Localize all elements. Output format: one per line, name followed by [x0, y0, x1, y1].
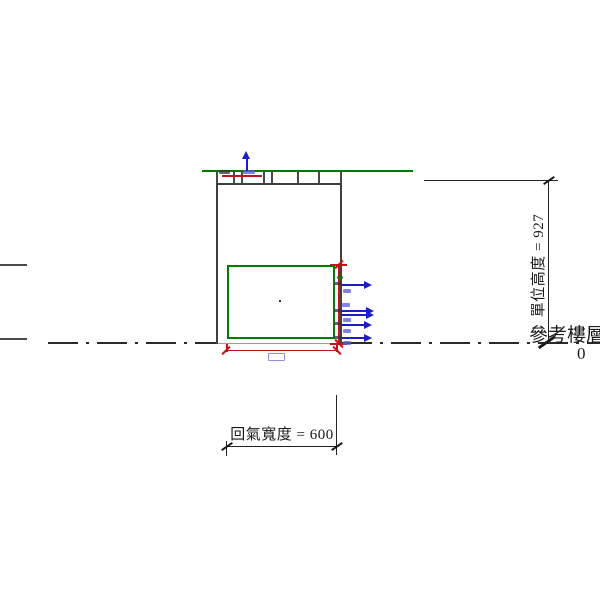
mounting-tab-line — [340, 171, 342, 183]
mounting-tab-line — [297, 171, 299, 183]
tiny-annotation — [343, 289, 351, 293]
tiny-annotation — [219, 170, 230, 174]
up-flow-arrow-icon[interactable] — [246, 158, 248, 171]
temp-dimension-horizontal[interactable] — [227, 350, 337, 351]
connector-mark — [337, 276, 343, 279]
connector-mark — [334, 282, 341, 285]
unit-bottom-edge — [216, 343, 342, 344]
return-width-dimension-text[interactable]: 回氣寬度 = 600 — [230, 423, 334, 444]
return-width-dimension-line[interactable] — [227, 446, 337, 447]
flow-arrowhead-icon — [364, 334, 372, 342]
top-red-reference-line — [222, 175, 262, 177]
dimension-extension-left — [226, 441, 227, 456]
tiny-annotation — [243, 170, 255, 174]
mounting-tab-line — [263, 171, 265, 183]
flow-arrowhead-icon — [364, 281, 372, 289]
center-dot — [279, 300, 281, 302]
up-flow-arrowhead-icon — [242, 151, 250, 159]
left-reference-stub-bottom — [0, 338, 27, 340]
mounting-tab-line — [318, 171, 320, 183]
return-air-opening[interactable] — [227, 265, 335, 339]
flow-arrow-icon[interactable] — [341, 310, 366, 312]
flow-arrowhead-icon — [364, 321, 372, 329]
flow-arrow-icon[interactable] — [341, 284, 364, 286]
tiny-annotation — [343, 318, 351, 322]
left-reference-stub-top — [0, 264, 27, 266]
tiny-annotation — [343, 329, 351, 333]
dimension-extension-top — [424, 180, 558, 181]
flow-arrowhead-icon — [366, 311, 374, 319]
level-elevation-text[interactable]: 0 — [577, 344, 586, 364]
level-name-text[interactable]: 參考樓層 — [529, 320, 600, 347]
connector-mark — [334, 309, 341, 312]
flow-arrow-icon[interactable] — [341, 337, 364, 339]
connector-mark — [334, 322, 341, 325]
tiny-annotation — [343, 341, 351, 345]
connector-mark — [334, 336, 341, 339]
mounting-tab-line — [216, 171, 218, 183]
unit-height-dimension-text[interactable]: 單位高度 = 927 — [527, 208, 548, 323]
tiny-annotation — [342, 303, 350, 307]
unit-height-dimension-line[interactable] — [548, 181, 549, 343]
mounting-tab-line — [271, 171, 273, 183]
mounting-tab-line — [233, 171, 235, 183]
tiny-dimension-value[interactable] — [268, 353, 285, 361]
drawing-canvas: 單位高度 = 927 參考樓層 0 回氣寬度 = 600 — [0, 0, 600, 600]
flow-arrow-icon[interactable] — [341, 314, 366, 316]
flow-arrow-icon[interactable] — [341, 324, 364, 326]
